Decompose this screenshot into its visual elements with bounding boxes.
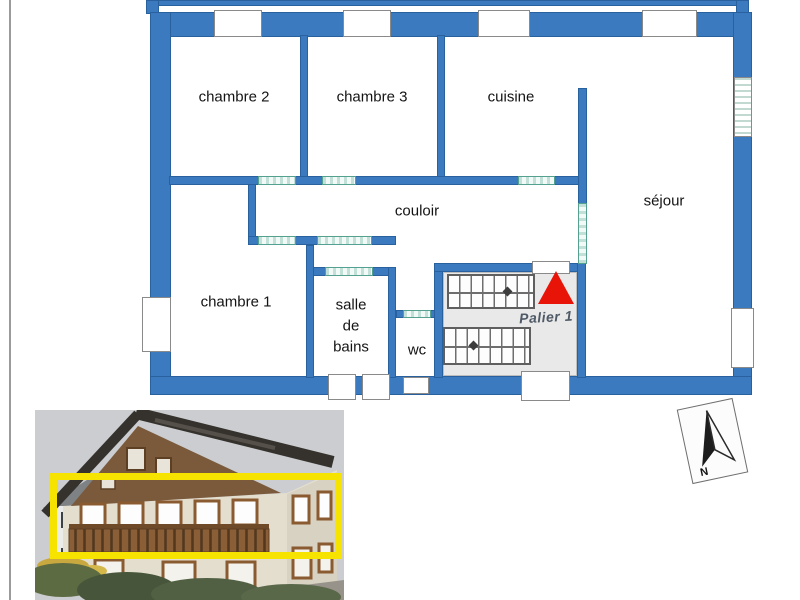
wall-palier-left <box>434 263 443 378</box>
stair-direction-marker-icon <box>503 286 513 296</box>
room-label-sejour: séjour <box>644 191 685 212</box>
wall-sdb-right <box>388 267 396 378</box>
room-label-chambre-1: chambre 1 <box>201 292 272 313</box>
screenshot-root: chambre 2 chambre 3 cuisine séjour coulo… <box>0 0 800 600</box>
landing-label: Palier 1 <box>519 308 574 327</box>
door-chambre3 <box>322 176 356 185</box>
door-chambre1 <box>258 236 296 245</box>
door-sejour <box>578 203 587 264</box>
north-arrow-icon: N <box>678 399 746 482</box>
upper-plan-remnant-line <box>152 0 748 6</box>
page-edge-line <box>9 0 11 600</box>
room-label-salle-de-bains: salle de bains <box>333 295 369 358</box>
room-label-couloir: couloir <box>395 201 439 222</box>
stair-direction-line <box>449 292 533 294</box>
exterior-wall-bottom <box>150 376 752 395</box>
window <box>362 374 390 400</box>
stair-direction-line <box>445 346 529 348</box>
staircase-lower-flight <box>443 327 531 365</box>
room-label-cuisine: cuisine <box>488 87 535 108</box>
door-salle-de-bains <box>325 267 373 276</box>
door-sdb-vestibule <box>317 236 372 245</box>
window <box>142 297 171 352</box>
floor-highlight-rectangle <box>50 473 342 559</box>
compass-north-label: N <box>699 466 709 479</box>
window <box>734 77 752 137</box>
wall-chambre3-cuisine <box>437 35 445 183</box>
window <box>328 374 356 400</box>
window <box>478 10 530 37</box>
room-label-chambre-3: chambre 3 <box>337 87 408 108</box>
wall-chambre1-sdb <box>306 245 314 378</box>
window <box>642 10 697 37</box>
window <box>731 308 754 368</box>
door-opening <box>403 377 429 394</box>
stairs-up-red-triangle-icon <box>538 271 574 304</box>
staircase-upper-flight <box>447 274 535 309</box>
wall-palier-right <box>577 263 586 378</box>
door-chambre2 <box>258 176 296 185</box>
wall-chambre2-chambre3 <box>300 35 308 183</box>
window <box>343 10 391 37</box>
stair-direction-marker-icon <box>469 341 479 351</box>
door-wc <box>403 310 431 318</box>
room-label-chambre-2: chambre 2 <box>199 87 270 108</box>
compass: N <box>677 398 749 484</box>
window <box>521 371 570 401</box>
wall-cuisine-sejour <box>578 88 587 204</box>
door-cuisine <box>518 176 555 185</box>
window <box>214 10 262 37</box>
room-label-wc: wc <box>408 340 426 361</box>
